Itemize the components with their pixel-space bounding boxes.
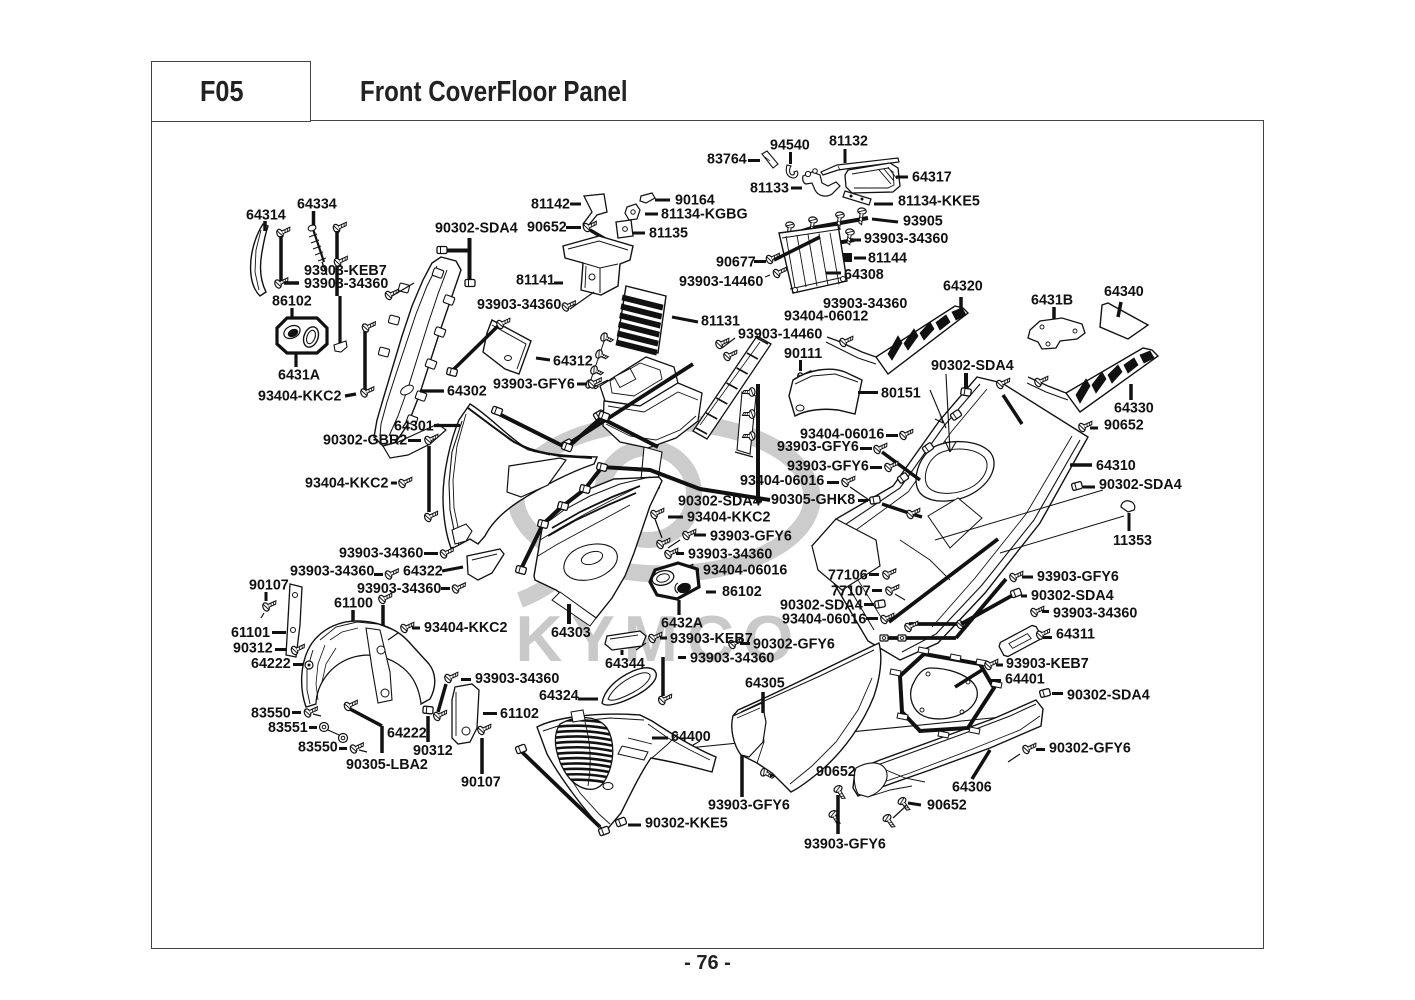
svg-text:81133: 81133 — [750, 181, 789, 197]
svg-text:93903-34360: 93903-34360 — [475, 671, 559, 687]
svg-text:90302-SDA4: 90302-SDA4 — [435, 221, 518, 237]
svg-text:86102: 86102 — [272, 294, 312, 310]
svg-text:90312: 90312 — [233, 641, 273, 657]
svg-text:77106: 77106 — [828, 568, 868, 584]
svg-text:93404-KKC2: 93404-KKC2 — [305, 476, 388, 492]
svg-text:64401: 64401 — [1005, 672, 1045, 688]
svg-text:90652: 90652 — [927, 798, 967, 814]
svg-text:93903-34360: 93903-34360 — [864, 231, 948, 247]
svg-text:93903-GFY6: 93903-GFY6 — [1037, 569, 1119, 585]
svg-text:81141: 81141 — [516, 273, 555, 289]
svg-text:64314: 64314 — [246, 208, 286, 224]
svg-text:64334: 64334 — [297, 197, 337, 213]
svg-text:93903-KEB7: 93903-KEB7 — [1006, 656, 1089, 672]
svg-text:64311: 64311 — [1056, 627, 1095, 643]
svg-text:83550: 83550 — [298, 740, 338, 756]
svg-text:64320: 64320 — [943, 279, 983, 295]
svg-text:6432A: 6432A — [661, 616, 703, 632]
svg-text:81144: 81144 — [868, 251, 907, 267]
svg-text:93404-KKC2: 93404-KKC2 — [258, 389, 341, 405]
svg-text:93903-GFY6: 93903-GFY6 — [708, 798, 790, 814]
svg-text:64303: 64303 — [551, 625, 591, 641]
svg-text:64330: 64330 — [1114, 401, 1154, 417]
svg-text:93404-KKC2: 93404-KKC2 — [687, 510, 770, 526]
svg-text:64312: 64312 — [553, 354, 593, 370]
svg-text:93404-06016: 93404-06016 — [703, 563, 787, 579]
svg-text:64302: 64302 — [447, 384, 487, 400]
svg-text:94540: 94540 — [770, 138, 810, 154]
svg-text:93903-34360: 93903-34360 — [688, 547, 772, 563]
svg-text:90305-GHK8: 90305-GHK8 — [771, 492, 855, 508]
svg-text:90677: 90677 — [716, 255, 756, 271]
svg-text:93404-06012: 93404-06012 — [784, 309, 868, 325]
svg-text:93905: 93905 — [903, 214, 943, 230]
svg-text:93903-34360: 93903-34360 — [290, 564, 374, 580]
svg-text:81135: 81135 — [649, 226, 688, 242]
svg-text:90302-KKE5: 90302-KKE5 — [645, 816, 728, 832]
svg-text:93903-GFY6: 93903-GFY6 — [710, 529, 792, 545]
svg-text:64308: 64308 — [844, 267, 884, 283]
svg-text:90302-SDA4: 90302-SDA4 — [1031, 588, 1114, 604]
svg-text:80151: 80151 — [881, 386, 921, 402]
svg-text:81132: 81132 — [829, 134, 868, 150]
svg-text:90107: 90107 — [249, 578, 289, 594]
svg-text:90111: 90111 — [784, 346, 822, 362]
svg-text:61101: 61101 — [231, 625, 270, 641]
svg-text:93903-GFY6: 93903-GFY6 — [493, 377, 575, 393]
svg-text:86102: 86102 — [722, 584, 762, 600]
svg-text:64400: 64400 — [671, 729, 711, 745]
svg-text:90305-LBA2: 90305-LBA2 — [346, 757, 428, 773]
svg-text:90302-GBR2: 90302-GBR2 — [323, 433, 407, 449]
svg-text:93903-34360: 93903-34360 — [339, 546, 423, 562]
svg-text:6431B: 6431B — [1031, 293, 1073, 309]
svg-text:64305: 64305 — [745, 676, 785, 692]
svg-text:61102: 61102 — [500, 706, 539, 722]
svg-text:81134-KGBG: 81134-KGBG — [661, 207, 748, 223]
svg-text:6431A: 6431A — [278, 368, 320, 384]
svg-text:64222: 64222 — [251, 656, 291, 672]
svg-text:83551: 83551 — [268, 720, 308, 736]
svg-text:61100: 61100 — [334, 596, 373, 612]
svg-text:90302-SDA4: 90302-SDA4 — [1099, 477, 1182, 493]
svg-text:93903-GFY6: 93903-GFY6 — [777, 439, 859, 455]
svg-text:64340: 64340 — [1104, 284, 1144, 300]
svg-text:64322: 64322 — [403, 564, 443, 580]
svg-text:64222: 64222 — [387, 726, 427, 742]
svg-text:93903-34360: 93903-34360 — [304, 276, 388, 292]
svg-text:83764: 83764 — [707, 152, 747, 168]
svg-text:93903-GFY6: 93903-GFY6 — [804, 837, 886, 853]
svg-text:81134-KKE5: 81134-KKE5 — [898, 194, 980, 210]
svg-text:11353: 11353 — [1113, 533, 1152, 549]
svg-text:93903-34360: 93903-34360 — [1053, 606, 1137, 622]
svg-text:90652: 90652 — [816, 764, 856, 780]
svg-text:93903-KEB7: 93903-KEB7 — [670, 631, 753, 647]
svg-text:81131: 81131 — [701, 314, 740, 330]
svg-text:90302-GFY6: 90302-GFY6 — [1049, 741, 1131, 757]
svg-text:90107: 90107 — [461, 775, 501, 791]
svg-text:93404-06016: 93404-06016 — [740, 473, 824, 489]
svg-text:64317: 64317 — [912, 170, 952, 186]
svg-text:90652: 90652 — [527, 220, 567, 236]
svg-text:93404-06016: 93404-06016 — [782, 612, 866, 628]
svg-text:81142: 81142 — [531, 197, 570, 213]
svg-text:90652: 90652 — [1104, 418, 1144, 434]
svg-text:93903-34360: 93903-34360 — [690, 651, 774, 667]
svg-text:93903-14460: 93903-14460 — [738, 327, 822, 343]
svg-text:64344: 64344 — [605, 656, 645, 672]
svg-text:90302-SDA4: 90302-SDA4 — [1067, 688, 1150, 704]
svg-text:90302-SDA4: 90302-SDA4 — [931, 358, 1014, 374]
svg-text:64324: 64324 — [539, 688, 579, 704]
svg-text:93903-14460: 93903-14460 — [679, 274, 763, 290]
svg-text:93903-34360: 93903-34360 — [477, 297, 561, 313]
svg-text:64310: 64310 — [1096, 458, 1136, 474]
svg-text:93404-KKC2: 93404-KKC2 — [424, 620, 507, 636]
svg-text:90302-SDA4: 90302-SDA4 — [678, 494, 761, 510]
svg-text:64306: 64306 — [952, 780, 992, 796]
